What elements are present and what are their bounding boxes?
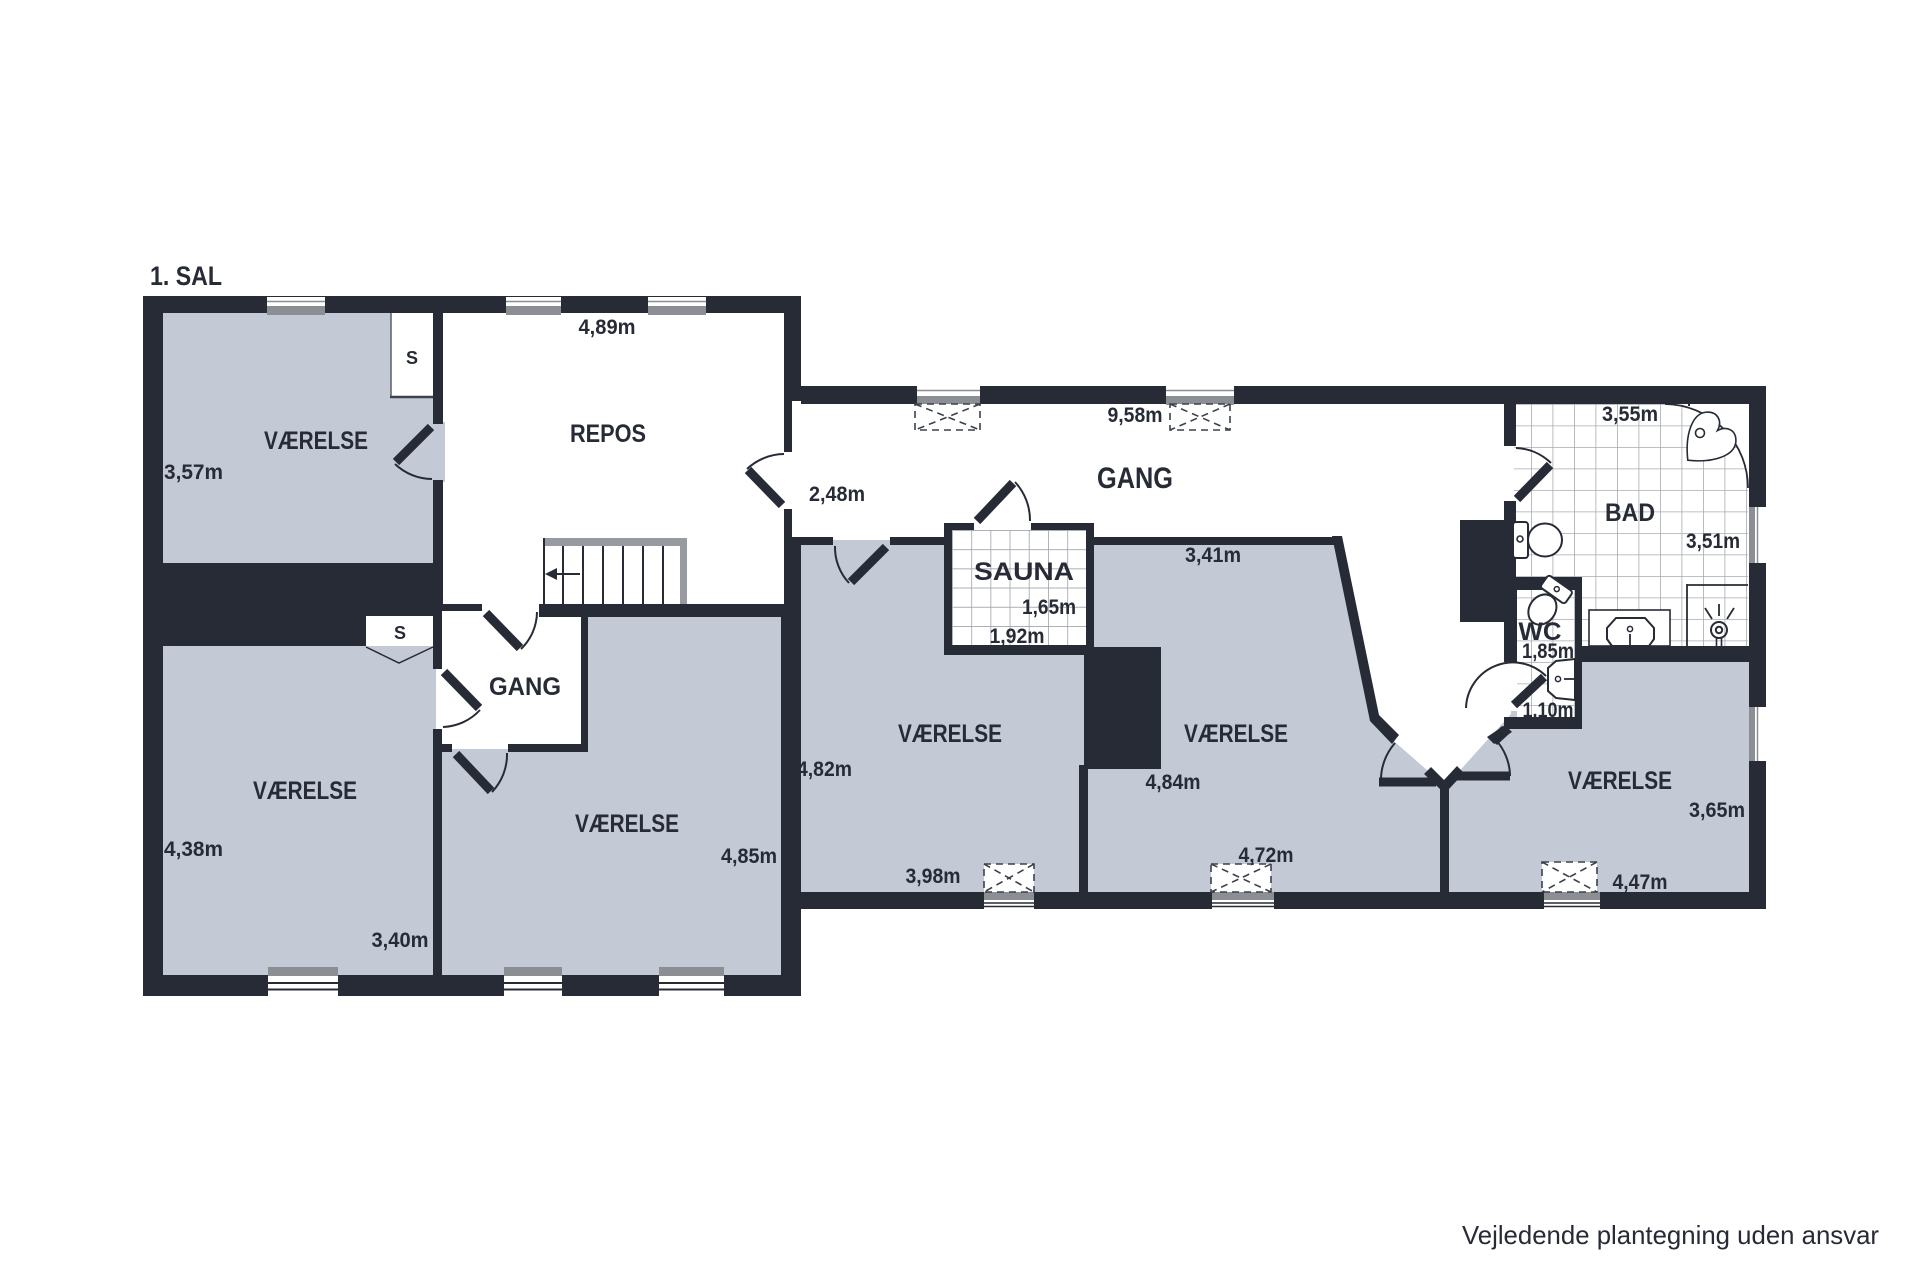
- svg-text:S: S: [406, 348, 418, 368]
- svg-text:1,92m: 1,92m: [990, 625, 1045, 648]
- svg-text:1,65m: 1,65m: [1022, 596, 1076, 619]
- svg-text:GANG: GANG: [489, 673, 561, 701]
- svg-text:4,47m: 4,47m: [1613, 871, 1668, 894]
- svg-text:1. SAL: 1. SAL: [150, 261, 222, 291]
- svg-text:3,57m: 3,57m: [164, 461, 223, 484]
- svg-text:Vejledende plantegning uden an: Vejledende plantegning uden ansvar: [1462, 1220, 1879, 1250]
- svg-text:3,55m: 3,55m: [1602, 403, 1658, 426]
- svg-text:GANG: GANG: [1097, 462, 1173, 495]
- svg-text:REPOS: REPOS: [570, 420, 646, 448]
- svg-text:SAUNA: SAUNA: [974, 558, 1074, 586]
- svg-text:4,38m: 4,38m: [164, 838, 223, 861]
- svg-text:4,82m: 4,82m: [797, 758, 852, 781]
- svg-text:S: S: [394, 623, 406, 643]
- svg-text:1,10m: 1,10m: [1523, 699, 1574, 722]
- svg-text:4,89m: 4,89m: [579, 316, 636, 339]
- svg-text:2,48m: 2,48m: [809, 483, 865, 506]
- svg-text:VÆRELSE: VÆRELSE: [253, 777, 357, 805]
- svg-text:4,84m: 4,84m: [1146, 771, 1201, 794]
- svg-text:3,98m: 3,98m: [906, 865, 961, 888]
- svg-text:VÆRELSE: VÆRELSE: [898, 720, 1002, 748]
- svg-text:VÆRELSE: VÆRELSE: [575, 810, 679, 838]
- svg-text:VÆRELSE: VÆRELSE: [1184, 720, 1288, 748]
- svg-text:4,72m: 4,72m: [1239, 844, 1294, 867]
- svg-text:3,65m: 3,65m: [1689, 799, 1745, 822]
- svg-text:9,58m: 9,58m: [1108, 404, 1163, 427]
- svg-text:3,51m: 3,51m: [1686, 530, 1740, 553]
- svg-text:4,85m: 4,85m: [721, 845, 777, 868]
- svg-text:VÆRELSE: VÆRELSE: [1568, 767, 1672, 795]
- svg-text:1,85m: 1,85m: [1522, 640, 1574, 663]
- svg-text:3,41m: 3,41m: [1185, 544, 1241, 567]
- svg-text:BAD: BAD: [1605, 499, 1655, 527]
- svg-text:3,40m: 3,40m: [372, 929, 429, 952]
- svg-text:VÆRELSE: VÆRELSE: [264, 427, 368, 455]
